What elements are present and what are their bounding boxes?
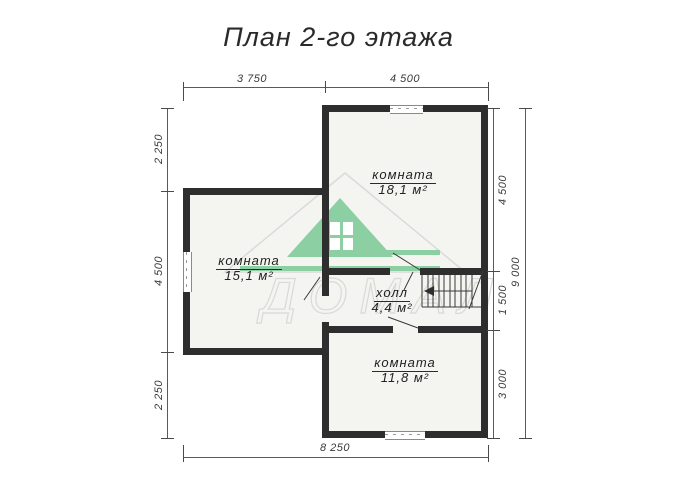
dimension-label: 2 250	[152, 365, 166, 425]
wall	[322, 105, 390, 112]
dim-tick	[161, 108, 174, 109]
window-top	[390, 105, 423, 114]
room-label-15: комната 15,1 м²	[184, 254, 314, 283]
dimension-label: 4 500	[496, 160, 510, 220]
room-area: 18,1 м²	[338, 183, 468, 197]
dim-tick	[325, 81, 326, 93]
dimension-line-top	[183, 87, 488, 88]
dimension-line-right-inner	[493, 108, 494, 438]
dimension-label: 2 250	[152, 119, 166, 179]
wall	[183, 292, 190, 355]
wall	[423, 105, 488, 112]
wall	[418, 326, 481, 333]
room-area: 11,8 м²	[340, 371, 470, 385]
dim-tick	[161, 191, 174, 192]
page-title: План 2-го этажа	[0, 22, 677, 53]
dim-tick	[487, 438, 500, 439]
window-bottom	[385, 431, 425, 440]
room-area: 15,1 м²	[184, 269, 314, 283]
wall	[329, 326, 393, 333]
dim-tick	[519, 438, 532, 439]
dimension-label: 9 000	[509, 242, 523, 302]
wall	[425, 431, 488, 438]
room-label-18: комната 18,1 м²	[338, 168, 468, 197]
room-area: 4,4 м²	[327, 301, 457, 315]
wall	[322, 105, 329, 296]
room-label-11: комната 11,8 м²	[340, 356, 470, 385]
dimension-label: 1 500	[496, 270, 510, 330]
wall	[183, 188, 190, 252]
dim-tick	[487, 108, 500, 109]
dim-tick	[161, 438, 174, 439]
wall	[183, 348, 329, 355]
dimension-label: 4 500	[152, 241, 166, 301]
floor-plan-page: План 2-го этажа ДОМАЛ	[0, 0, 677, 477]
dim-tick	[519, 108, 532, 109]
dimension-line-right-outer	[525, 108, 526, 438]
wall	[420, 268, 481, 275]
dimension-label: 8 250	[305, 441, 365, 455]
dim-tick	[161, 352, 174, 353]
dimension-line-left	[167, 108, 168, 438]
dimension-label: 3 000	[496, 354, 510, 414]
dimension-label: 4 500	[375, 72, 435, 86]
room-label-hall: холл 4,4 м²	[327, 286, 457, 315]
wall	[322, 431, 385, 438]
wall	[329, 268, 390, 275]
dimension-line-bottom	[183, 457, 488, 458]
dim-tick	[183, 445, 184, 462]
dim-tick	[487, 330, 500, 331]
wall	[322, 322, 329, 438]
dim-tick	[488, 82, 489, 101]
dimension-label: 3 750	[222, 72, 282, 86]
dim-tick	[183, 82, 184, 101]
dim-tick	[488, 445, 489, 462]
wall	[183, 188, 329, 195]
